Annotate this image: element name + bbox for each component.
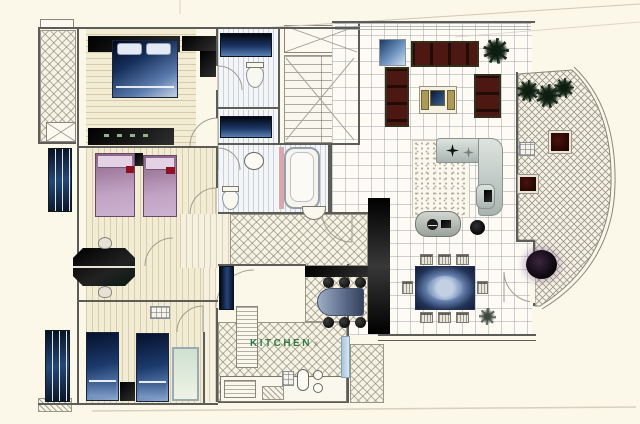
wall-balcony-left [516,72,518,242]
tv-shelf [379,39,406,66]
coffee-table-top [430,90,445,106]
sliding-wardrobe [48,148,72,212]
armchair-seat [484,190,492,202]
coffee-table-side [447,90,455,110]
dining-table [428,276,462,300]
sofa-two-seat [474,74,501,118]
bathtub-basin [290,152,314,202]
bed-pillow [117,43,142,55]
counter-shelves [224,380,256,398]
twin-nightstand [135,153,143,166]
kitchen-door-panel [341,336,350,378]
balcony-bench [519,142,535,156]
wall-center-4 [216,308,218,402]
single-bed-pink [95,153,135,217]
bed-accent [126,166,134,173]
desk-counter-line [73,266,135,268]
service-terrace-floor [350,344,384,403]
corridor-floor [180,214,230,268]
bed-accent [166,167,175,174]
small-plant [479,308,496,325]
wall-foyer-top [218,212,370,214]
bar-stool [323,277,334,288]
wall-bottom-left-wing [38,403,218,405]
sofa-two-seat [385,67,409,127]
wall-balcony-strip [38,27,40,144]
dining-chair [456,254,469,265]
balcony-plant [554,78,574,98]
drain-board [262,386,284,400]
wall-top-left-wing [38,27,218,29]
single-bed-pink [143,155,177,217]
round-side-table [470,220,485,235]
duct-shaft [46,122,76,142]
kitchen-label-text: KITCHEN [250,338,312,349]
duct-wall [182,36,216,51]
toilet-tank [222,186,239,192]
sink-basin [297,369,309,391]
pantry-column [368,198,390,334]
dining-chair [438,312,451,323]
wall-living-jog [330,143,360,145]
bar-counter [305,266,368,277]
foyer-floor [230,214,368,266]
living-window-band [335,23,531,31]
bath-b-vanity-counter [220,116,272,138]
wall-balcony-strip-btm [38,142,76,144]
bed-pillow [146,43,171,55]
wall-dining-bottom-inner [378,340,536,341]
sink-bowl [313,383,323,393]
bar-stool [339,277,350,288]
wall-dining-bottom-outer [378,334,536,336]
dining-chair [420,312,433,323]
sink-bowl [313,370,323,380]
scan-shadow-line [92,407,636,411]
sliding-wardrobe [45,330,70,402]
wall-kids-room [203,332,205,403]
wall-bath-right [278,27,280,145]
wall-center-1 [216,27,218,66]
small-side-table [150,306,170,319]
breakfast-table [317,288,364,316]
bar-stool [339,317,350,328]
toilet-tank [246,62,264,68]
tv-console [415,211,461,237]
wall-stair-right [358,21,360,145]
floor-plan: KITCHENx [0,0,640,424]
duct-wall-leg [200,51,216,77]
kitchen-label: KITCHENx [250,338,318,349]
wardrobe-markings [104,134,148,137]
wall-center-2 [216,90,218,118]
wall-tubroom-top [218,143,330,145]
kids-nightstand [120,382,135,401]
dining-chair [402,281,413,294]
coffee-table-side [421,90,429,110]
dining-chair [477,281,488,294]
console-component [441,220,451,228]
bath-a-vanity-counter [220,33,272,57]
wall-bath-divider [218,107,280,109]
dining-chair [420,254,433,265]
bar-stool [355,277,366,288]
balcony-table [518,175,538,193]
dining-chair [456,312,469,323]
balcony-round-table [526,250,557,279]
sofa-three-seat [411,41,479,67]
wall-room-divider-2 [78,300,218,302]
cooktop [282,371,294,386]
wall-center-3 [216,148,218,188]
dining-chair [438,254,451,265]
kitchen-label-mark: x [314,339,318,348]
potted-plant [483,38,509,64]
wall-room-divider-1 [78,146,218,148]
bar-stool [355,317,366,328]
console-speaker [427,219,438,230]
bar-stool [323,317,334,328]
single-bed-blue [136,333,169,402]
refrigerator [219,266,234,310]
round-sink [244,152,264,170]
wall-left-outer [77,27,79,405]
desk-chair [98,237,112,249]
towel-rail [279,147,284,209]
desk-chair [98,286,112,298]
single-bed-blue [86,332,119,401]
balcony-table [549,131,571,153]
kids-desk [172,347,199,401]
tall-cabinet [236,306,258,368]
wall-living-left [330,145,332,214]
